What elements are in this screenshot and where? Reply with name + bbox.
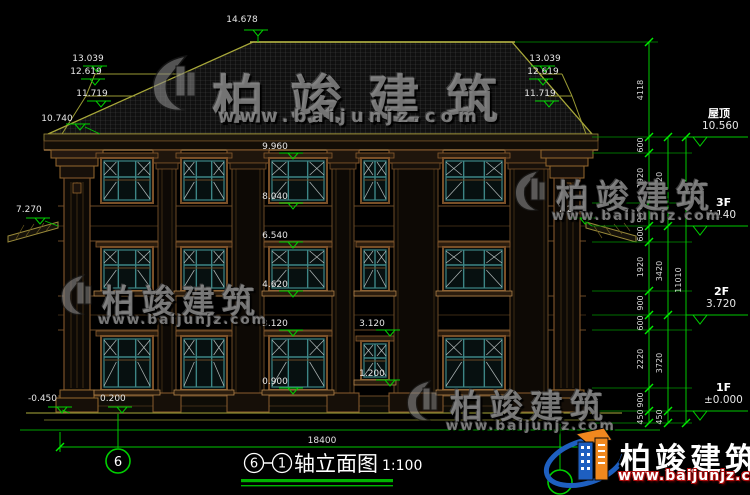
dim-text: 2220	[636, 349, 645, 369]
floor-elevation-label: 6.540	[262, 231, 288, 241]
dim-text: 3720	[655, 353, 664, 373]
dim-text: 4118	[636, 80, 645, 100]
story-level-name: 屋顶	[708, 107, 730, 120]
watermark-logo-icon	[56, 272, 100, 318]
brand-url: www.baijunjz.com	[618, 468, 750, 484]
drawing-title: 轴立面图	[294, 452, 378, 476]
cad-drawing-canvas: 14.678 13.039 12.619 11.719 10.740 7.270…	[0, 0, 750, 495]
watermark-logo-icon	[402, 378, 446, 424]
story-level-name: 2F	[714, 285, 729, 298]
dim-text: 600	[636, 226, 645, 241]
watermark-url: www.baijunjz.com	[552, 208, 722, 224]
dim-text: 1920	[636, 257, 645, 277]
drawing-scale: 1:100	[382, 458, 422, 474]
window	[94, 331, 160, 395]
story-level-name: 1F	[716, 381, 731, 394]
story-level-value: 10.560	[702, 120, 739, 132]
floor-elevation-label: 8.040	[262, 192, 288, 202]
dim-text: 900	[636, 295, 645, 310]
title-underline	[241, 479, 393, 482]
dim-text-overall: 11010	[674, 267, 683, 292]
stair-elevation-label: 3.120	[359, 319, 385, 329]
dim-text: 600	[636, 137, 645, 152]
title-axis-start: 6	[250, 457, 258, 472]
window	[96, 153, 158, 203]
dim-text: 450	[636, 409, 645, 424]
ground-level-label: -0.450	[28, 394, 57, 404]
window	[438, 153, 510, 203]
watermark-url: www.baijunjz.com	[98, 312, 268, 328]
watermark-logo-icon	[146, 52, 208, 114]
dim-text: 450	[655, 409, 664, 424]
elevation-label: 11.719	[76, 89, 108, 99]
dim-text: 900	[636, 392, 645, 407]
ground-level-label: 0.200	[100, 394, 126, 404]
title-underline-thin	[241, 485, 393, 486]
stair-elevation-label: 1.200	[359, 369, 385, 379]
window	[436, 242, 512, 296]
title-axis-end: 1	[278, 457, 286, 472]
story-level-value: 3.720	[706, 298, 736, 310]
elevation-label-eave: 10.740	[41, 114, 73, 124]
elevation-label: 13.039	[529, 54, 561, 64]
elevation-label-awning-left: 7.270	[16, 205, 42, 215]
window	[174, 331, 234, 395]
dim-text: 3420	[655, 261, 664, 281]
floor-elevation-label: 9.960	[262, 142, 288, 152]
elevation-label: 13.039	[72, 54, 104, 64]
axis-bubble-number: 6	[114, 455, 122, 470]
story-level-value: ±0.000	[704, 394, 743, 406]
window	[356, 153, 394, 203]
elevation-label-peak: 14.678	[226, 15, 258, 25]
window	[176, 153, 232, 203]
window-grid	[94, 153, 512, 395]
dim-text: 600	[636, 315, 645, 330]
floor-elevation-label: 4.620	[262, 280, 288, 290]
elevation-label: 12.619	[70, 67, 102, 77]
watermark-url: www.baijunjz.com	[218, 106, 482, 127]
total-width-dim: 18400	[308, 436, 337, 446]
floor-elevation-label: 0.900	[262, 377, 288, 387]
elevation-label: 12.619	[527, 67, 559, 77]
elevation-label: 11.719	[524, 89, 556, 99]
window	[354, 242, 396, 296]
watermark-logo-icon	[510, 168, 554, 214]
